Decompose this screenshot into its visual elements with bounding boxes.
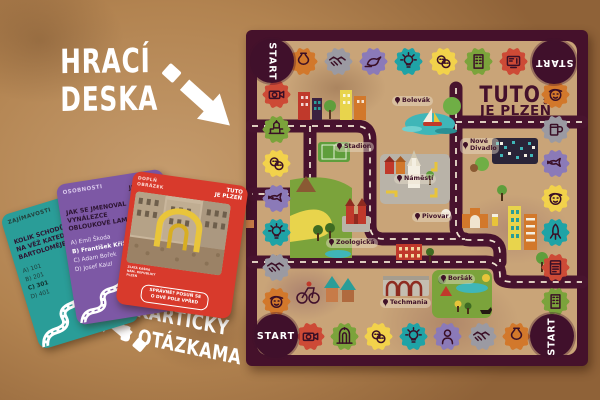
board-annotation-line2: DESKA (60, 80, 158, 119)
card-footer-chip: SPRÁVNĚ? POSUŇ SE O DVĚ POLE VPŘED (140, 284, 210, 311)
fish-icon (539, 147, 572, 180)
board-space-gray-handshake (322, 45, 355, 78)
start-label: START (535, 57, 573, 68)
board-space-red-camera (294, 320, 327, 353)
map-location-pivovar: Pivovar (412, 212, 452, 222)
camera-icon (294, 320, 327, 353)
board-space-teal-bulb (397, 320, 430, 353)
map-pin-icon (383, 299, 388, 307)
bulb-icon (392, 45, 425, 78)
square-photo-icon (126, 191, 231, 276)
board-space-green-church (260, 113, 293, 146)
start-label: START (257, 331, 295, 342)
rocket-icon (539, 216, 572, 249)
photo-caption: ZLATÁ KAŠNANÁM. REPUBLIKYPLZEŇ (126, 265, 156, 281)
tv-icon (497, 45, 530, 78)
bulb-icon (260, 216, 293, 249)
board-space-yellow-masks (427, 45, 460, 78)
board-space-purple-bird (357, 45, 390, 78)
map-location-label: Stadion (344, 144, 371, 151)
board-space-purple-fish (260, 182, 293, 215)
map-pin-icon (463, 142, 468, 150)
board-space-green-building (462, 45, 495, 78)
promo-image: HRACÍ DESKA KARTIČKY S OTÁZKAMA ZAJÍMAVO… (0, 0, 600, 400)
map-location-techmania: Techmania (380, 298, 431, 308)
masks-icon (427, 45, 460, 78)
map-pin-icon (397, 175, 402, 183)
gate-icon (328, 320, 361, 353)
handshake-icon (466, 320, 499, 353)
start-label: START (267, 42, 278, 80)
building-icon (539, 285, 572, 318)
board-space-red-camera (260, 78, 293, 111)
board-space-teal-bulb (260, 216, 293, 249)
board-space-red-tv (497, 45, 530, 78)
map-location-label: Bolevák (402, 98, 430, 105)
camera-icon (260, 78, 293, 111)
person-icon (431, 320, 464, 353)
church-icon (260, 113, 293, 146)
card-category: ZAJÍMAVOSTI (7, 207, 52, 226)
bird-icon (357, 45, 390, 78)
map-pin-icon (441, 275, 446, 283)
start-space-1: START (532, 40, 576, 84)
board-space-yellow-masks (362, 320, 395, 353)
map-location-bor-k: Boršák (438, 274, 475, 284)
board-space-green-gate (328, 320, 361, 353)
board-space-teal-rocket (539, 216, 572, 249)
card-photo (126, 191, 231, 276)
map-location-label: Boršák (448, 276, 472, 283)
board-space-gray-mug (539, 113, 572, 146)
card-category: DOPLŇ OBRÁZEK (137, 176, 165, 191)
start-label: START (547, 317, 558, 355)
board-space-gray-handshake (466, 320, 499, 353)
start-space-2: START (254, 314, 298, 358)
game-board: TUTO↓ JE PLZEŇ STARTSTARTSTARTSTARTBolev… (246, 30, 588, 366)
board-space-yellow-face (539, 182, 572, 215)
building-icon (462, 45, 495, 78)
board-space-orange-vase (500, 320, 533, 353)
board-space-green-building (539, 285, 572, 318)
masks-icon (362, 320, 395, 353)
board-space-purple-person (431, 320, 464, 353)
vase-icon (500, 320, 533, 353)
board-space-gray-handshake (260, 251, 293, 284)
map-location-nov-divadlo: Nové Divadlo (460, 138, 499, 154)
map-location-label: Náměstí (404, 176, 433, 183)
map-location-zoologick-: Zoologická (326, 238, 378, 248)
map-location-n-m-st-: Náměstí (394, 174, 436, 184)
handshake-icon (260, 251, 293, 284)
handshake-icon (322, 45, 355, 78)
map-pin-icon (415, 213, 420, 221)
arrow-to-board-icon (152, 58, 244, 144)
map-pin-icon (395, 97, 400, 105)
map-pin-icon (337, 143, 342, 151)
map-location-label: Techmania (390, 300, 428, 307)
start-space-3: START (530, 314, 574, 358)
board-space-red-book (539, 251, 572, 284)
board-space-yellow-masks (260, 147, 293, 180)
board-annotation-line1: HRACÍ (60, 43, 158, 82)
question-card-picture: DOPLŇ OBRÁZEK TUTO JE PLZEŇ (115, 171, 249, 320)
start-space-0: START (250, 39, 294, 83)
board-space-teal-bulb (392, 45, 425, 78)
fish-icon (260, 182, 293, 215)
map-location-bolev-k: Bolevák (392, 96, 433, 106)
map-location-label: Nové Divadlo (470, 139, 496, 153)
masks-icon (260, 147, 293, 180)
board-annotation: HRACÍ DESKA (60, 43, 158, 119)
face-icon (539, 182, 572, 215)
card-category: OSOBNOSTI (62, 184, 103, 196)
bulb-icon (397, 320, 430, 353)
card-logo: TUTO JE PLZEŇ (214, 187, 243, 202)
board-overlay: STARTSTARTSTARTSTARTBolevákStadionNáměst… (246, 30, 588, 366)
map-location-label: Pivovar (422, 214, 449, 221)
book-icon (539, 251, 572, 284)
board-space-purple-fish (539, 147, 572, 180)
map-location-stadion: Stadion (334, 142, 374, 152)
mug-icon (539, 113, 572, 146)
map-pin-icon (329, 239, 334, 247)
map-location-label: Zoologická (336, 240, 375, 247)
